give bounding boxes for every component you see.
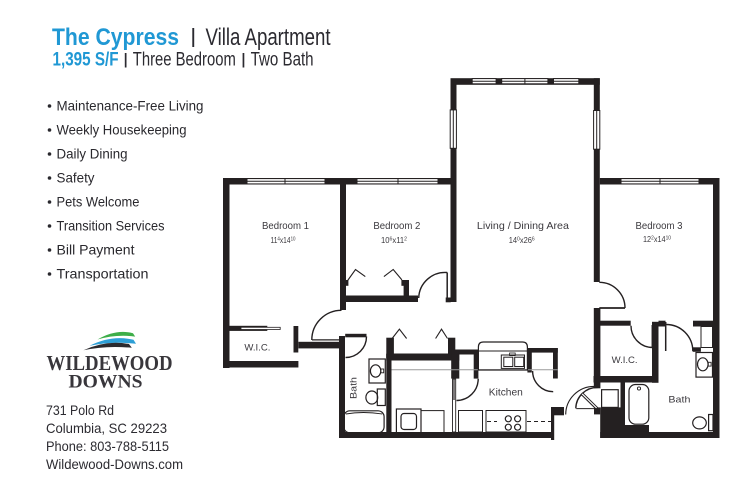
svg-text:Bedroom 3: Bedroom 3 — [636, 220, 683, 232]
svg-text:Bedroom 2: Bedroom 2 — [373, 220, 420, 232]
svg-text:Weekly Housekeeping: Weekly Housekeeping — [57, 123, 187, 138]
svg-text:Bath: Bath — [349, 377, 360, 399]
svg-text:The Cypress: The Cypress — [52, 24, 179, 51]
svg-text:140x266: 140x266 — [509, 236, 535, 245]
svg-text:Transportation: Transportation — [57, 267, 149, 282]
svg-text:1,395 S/F: 1,395 S/F — [53, 49, 119, 70]
svg-text:Safety: Safety — [57, 171, 95, 186]
svg-text:114x1410: 114x1410 — [271, 236, 296, 245]
svg-text:DOWNS: DOWNS — [69, 373, 143, 393]
svg-text:Three Bedroom: Three Bedroom — [133, 49, 236, 70]
svg-text:Villa Apartment: Villa Apartment — [206, 24, 331, 51]
svg-text:Phone: 803-788-5115: Phone: 803-788-5115 — [46, 438, 169, 454]
svg-text:Bedroom 1: Bedroom 1 — [262, 220, 309, 232]
svg-text:Maintenance-Free Living: Maintenance-Free Living — [57, 99, 204, 114]
svg-text:WILDEWOOD: WILDEWOOD — [47, 351, 173, 375]
svg-text:106x112: 106x112 — [381, 236, 407, 245]
svg-text:122x1410: 122x1410 — [643, 235, 671, 244]
svg-text:Kitchen: Kitchen — [489, 387, 523, 399]
svg-text:Columbia, SC 29223: Columbia, SC 29223 — [46, 420, 167, 436]
svg-text:Bath: Bath — [668, 395, 690, 406]
svg-text:Bill Payment: Bill Payment — [57, 243, 135, 258]
svg-text:W.I.C.: W.I.C. — [244, 343, 270, 354]
svg-text:Wildewood-Downs.com: Wildewood-Downs.com — [46, 456, 183, 472]
svg-text:Pets Welcome: Pets Welcome — [57, 195, 140, 210]
svg-text:W.I.C.: W.I.C. — [612, 355, 638, 366]
svg-text:731 Polo Rd: 731 Polo Rd — [46, 402, 114, 418]
svg-text:Daily Dining: Daily Dining — [57, 147, 128, 162]
svg-text:Two Bath: Two Bath — [251, 49, 314, 70]
svg-text:Transition Services: Transition Services — [57, 219, 165, 234]
svg-text:Living / Dining Area: Living / Dining Area — [477, 220, 569, 232]
